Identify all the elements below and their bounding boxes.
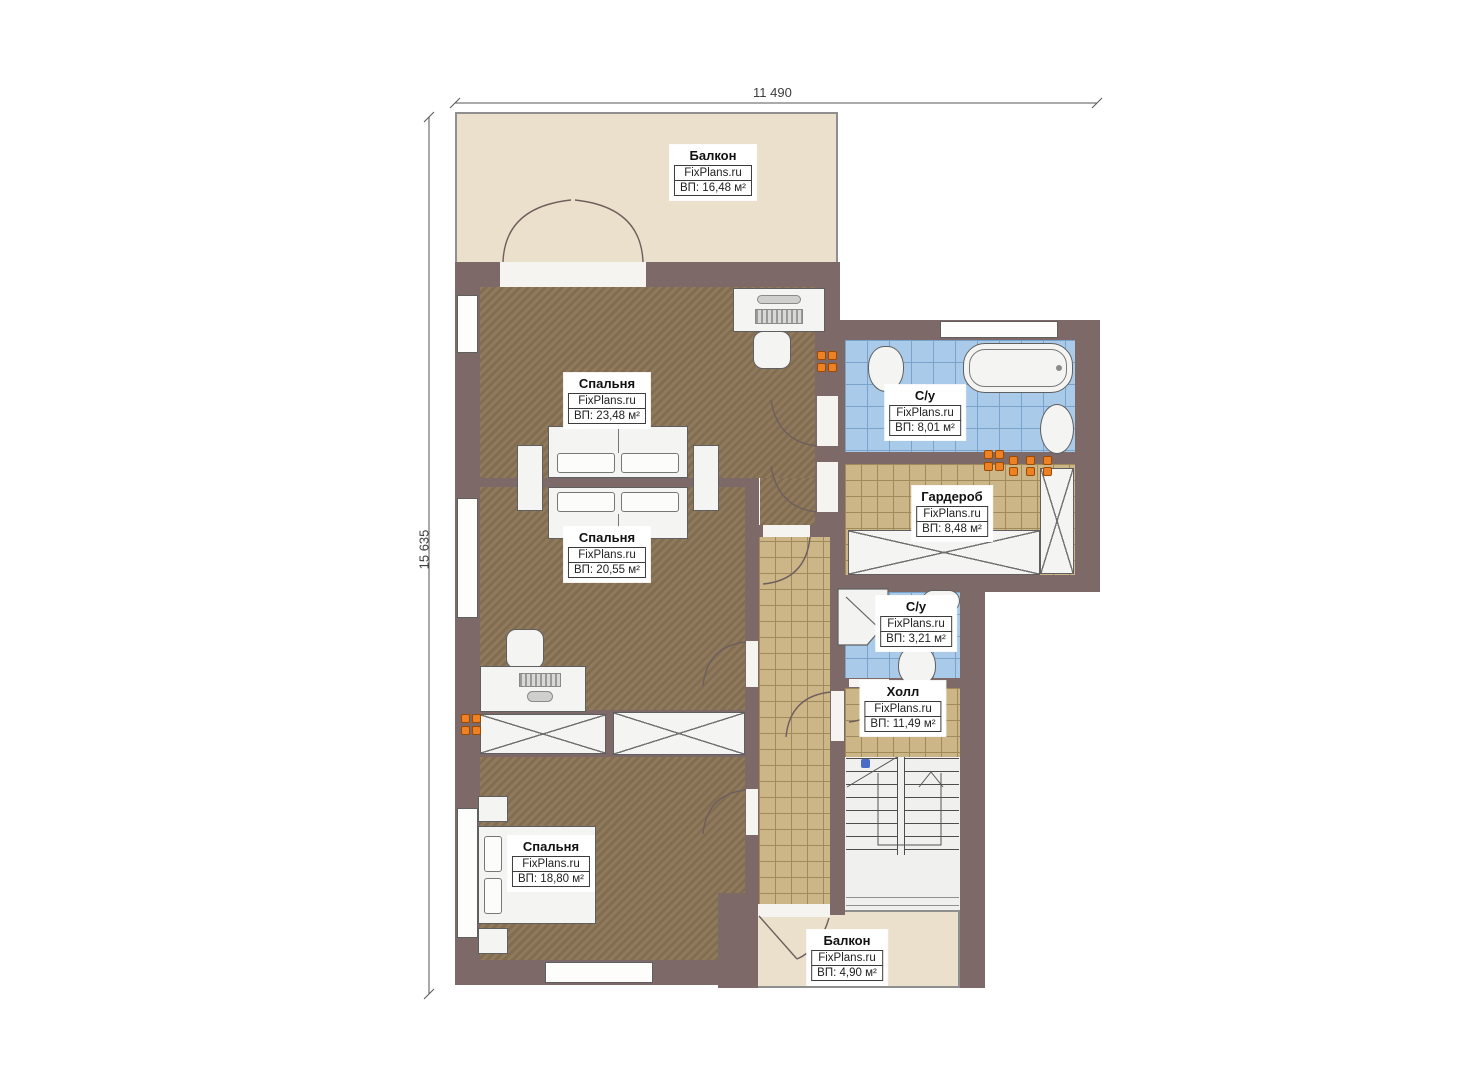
socket-icon (828, 363, 837, 372)
room-label-balcony-top: Балкон FixPlans.ru ВП: 16,48 м² (670, 145, 756, 200)
room-brand: FixPlans.ru (674, 165, 752, 181)
room-name: Холл (864, 684, 941, 699)
stair-flight-right (905, 758, 959, 854)
door-opening-bedroom3 (746, 789, 758, 835)
radiator-icon (1026, 456, 1035, 465)
closet-wardrobe-right (1040, 468, 1074, 574)
corridor-floor (759, 525, 830, 915)
room-brand: FixPlans.ru (568, 547, 646, 563)
room-brand: FixPlans.ru (568, 393, 646, 409)
mouse-icon (527, 691, 553, 702)
stair-divider (897, 757, 905, 855)
dimension-width: 11 490 (753, 85, 792, 100)
door-opening-corridor (763, 525, 810, 537)
room-name: С/у (880, 599, 952, 614)
room-name: Балкон (674, 148, 752, 163)
closet-bed2-bed3-right (613, 712, 745, 755)
room-area: ВП: 8,01 м² (889, 420, 961, 436)
floor-plan: 11 490 15 635 Балкон FixPlans.ru ВП: 16,… (0, 0, 1474, 1080)
pillow (621, 492, 679, 512)
room-label-wardrobe: Гардероб FixPlans.ru ВП: 8,48 м² (912, 486, 992, 541)
socket-icon (461, 726, 470, 735)
dimension-height: 15 635 (416, 530, 431, 570)
wall-rightblock-bottom (830, 575, 1100, 592)
stair-flight-left (846, 758, 897, 854)
socket-icon (461, 714, 470, 723)
bedroom-1-nook-floor (760, 478, 815, 525)
bathtub (963, 343, 1073, 393)
wall-rightblock-right (1075, 320, 1100, 592)
socket-icon (472, 726, 481, 735)
closet-bed2-bed3-left (480, 714, 606, 754)
room-brand: FixPlans.ru (512, 856, 590, 872)
room-name: Гардероб (916, 489, 988, 504)
nightstand-left (517, 445, 543, 511)
balcony-door-opening (500, 262, 646, 287)
desk-bedroom2 (480, 666, 586, 712)
wall-bed3-corner-chunk (718, 893, 758, 988)
room-area: ВП: 23,48 м² (568, 408, 646, 424)
window-bedroom3-left (457, 808, 478, 938)
radiator-icon (1043, 467, 1052, 476)
keyboard-icon (755, 309, 803, 324)
desk-bedroom1 (733, 288, 825, 332)
room-name: Спальня (512, 839, 590, 854)
room-area: ВП: 18,80 м² (512, 871, 590, 887)
radiator-icon (1009, 467, 1018, 476)
office-chair-bedroom2 (506, 629, 544, 669)
pillow (484, 878, 502, 914)
door-opening-bathroom1 (817, 396, 838, 446)
double-bed-bedroom1 (548, 426, 688, 478)
room-name: Спальня (568, 530, 646, 545)
door-opening-bedroom2 (746, 641, 758, 687)
radiator-icon (1009, 456, 1018, 465)
room-area: ВП: 8,48 м² (916, 521, 988, 537)
sink-bathroom1 (1040, 404, 1074, 454)
wall-bath1-wardrobe (845, 452, 1075, 464)
door-opening-balcony-bottom (758, 904, 830, 917)
pillow (557, 492, 615, 512)
door-opening-hall (831, 691, 844, 741)
balcony-top-floor (455, 112, 838, 264)
room-area: ВП: 4,90 м² (811, 965, 883, 981)
room-brand: FixPlans.ru (889, 405, 961, 421)
wall-hall-right (960, 592, 985, 988)
window-bedroom1-left (457, 295, 478, 353)
socket-icon (817, 363, 826, 372)
socket-icon (984, 450, 993, 459)
socket-icon (995, 450, 1004, 459)
room-label-bathroom-2: С/у FixPlans.ru ВП: 3,21 м² (876, 596, 956, 651)
socket-icon (817, 351, 826, 360)
pillow (621, 453, 679, 473)
socket-icon (828, 351, 837, 360)
socket-icon (984, 462, 993, 471)
room-label-bedroom-3: Спальня FixPlans.ru ВП: 18,80 м² (508, 836, 594, 891)
socket-icon (995, 462, 1004, 471)
room-name: Балкон (811, 933, 883, 948)
wall-corridor-left (745, 478, 759, 915)
pillow (484, 836, 502, 872)
radiator-icon (1043, 456, 1052, 465)
office-chair-bedroom1 (753, 331, 791, 369)
room-brand: FixPlans.ru (880, 616, 952, 632)
window-bathroom1-top (940, 321, 1058, 338)
room-area: ВП: 16,48 м² (674, 180, 752, 196)
bathtub-drain (1056, 365, 1062, 371)
nightstand-bed3-top (478, 796, 508, 822)
room-area: ВП: 20,55 м² (568, 562, 646, 578)
room-label-balcony-bottom: Балкон FixPlans.ru ВП: 4,90 м² (807, 930, 887, 985)
stair-start-marker (861, 759, 870, 768)
bed-center-line (618, 427, 619, 453)
room-label-bathroom-1: С/у FixPlans.ru ВП: 8,01 м² (885, 385, 965, 440)
laptop-icon (757, 295, 801, 304)
room-brand: FixPlans.ru (811, 950, 883, 966)
bathtub-inner (969, 349, 1067, 387)
room-name: Спальня (568, 376, 646, 391)
room-name: С/у (889, 388, 961, 403)
window-bedroom3-bottom (545, 962, 653, 983)
door-opening-wardrobe (817, 462, 838, 512)
room-label-hall: Холл FixPlans.ru ВП: 11,49 м² (860, 681, 945, 736)
room-area: ВП: 11,49 м² (864, 716, 941, 732)
wall-rightblock-left (830, 320, 845, 592)
nightstand-bed3-bottom (478, 928, 508, 954)
room-brand: FixPlans.ru (864, 701, 941, 717)
room-area: ВП: 3,21 м² (880, 631, 952, 647)
radiator-icon (1026, 467, 1035, 476)
nightstand-right (693, 445, 719, 511)
room-label-bedroom-1: Спальня FixPlans.ru ВП: 23,48 м² (564, 373, 650, 428)
keyboard-icon (519, 673, 561, 687)
stair-threshold (846, 897, 959, 906)
room-brand: FixPlans.ru (916, 506, 988, 522)
socket-icon (472, 714, 481, 723)
pillow (557, 453, 615, 473)
window-bedroom2-left (457, 498, 478, 618)
room-label-bedroom-2: Спальня FixPlans.ru ВП: 20,55 м² (564, 527, 650, 582)
